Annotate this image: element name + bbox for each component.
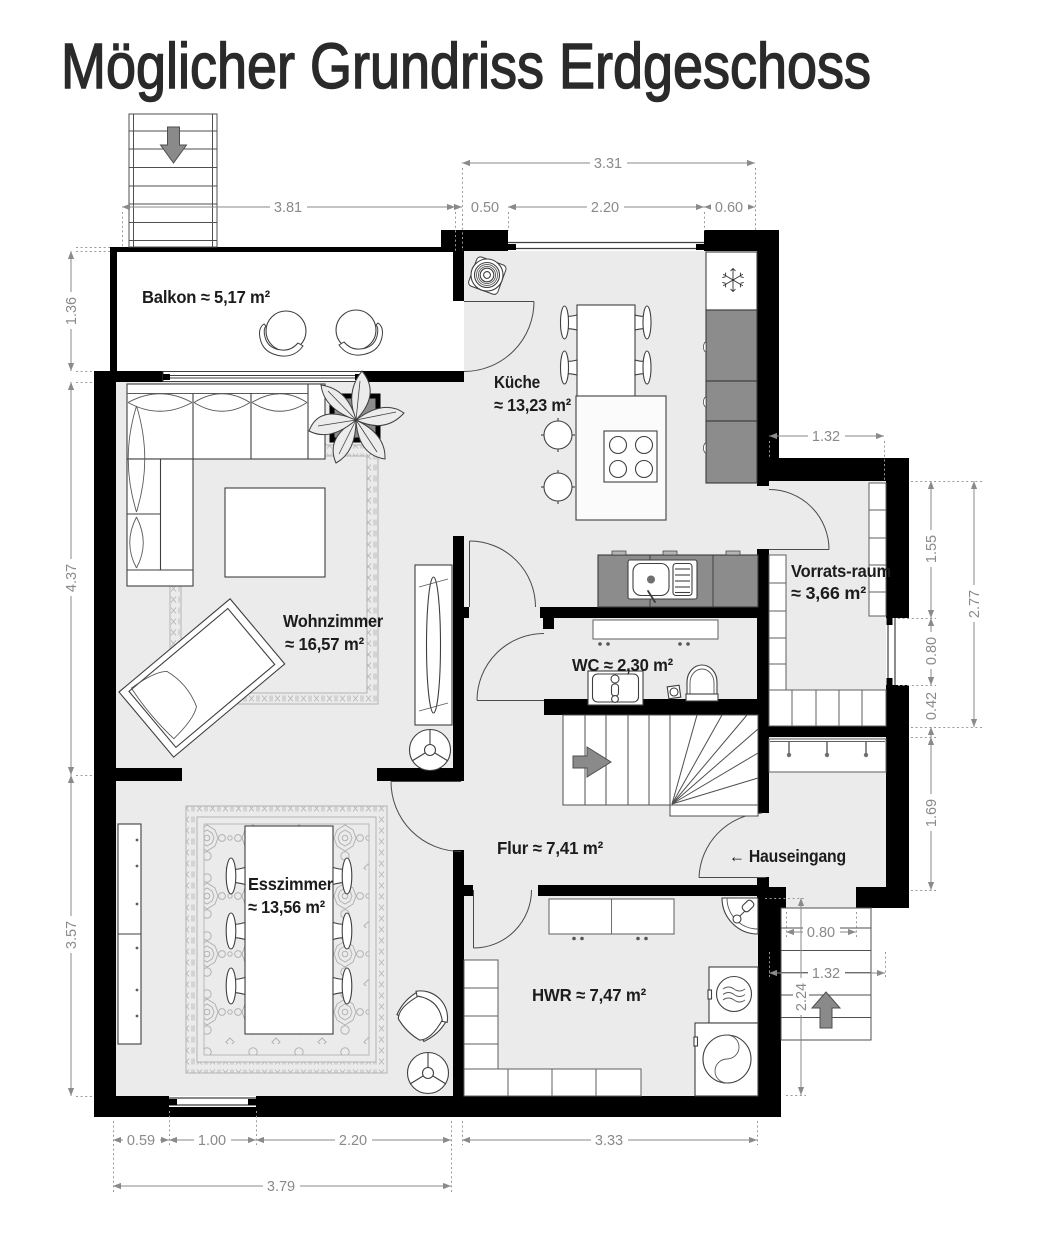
svg-text:Balkon ≈ 5,17 m²: Balkon ≈ 5,17 m² [142, 287, 270, 307]
svg-text:2.77: 2.77 [967, 590, 983, 618]
svg-text:2.20: 2.20 [339, 1133, 367, 1149]
svg-text:Esszimmer: Esszimmer [248, 874, 333, 894]
svg-text:1.69: 1.69 [924, 799, 940, 827]
svg-text:Möglicher Grundriss Erdgeschos: Möglicher Grundriss Erdgeschoss [61, 30, 871, 102]
svg-text:1.00: 1.00 [198, 1133, 226, 1149]
svg-text:← Hauseingang: ← Hauseingang [729, 846, 846, 866]
svg-text:3.31: 3.31 [594, 156, 622, 172]
svg-text:≈ 16,57 m²: ≈ 16,57 m² [285, 634, 364, 654]
svg-text:≈ 13,23 m²: ≈ 13,23 m² [494, 395, 571, 415]
svg-text:WC ≈ 2,30 m²: WC ≈ 2,30 m² [572, 655, 673, 675]
svg-text:Flur ≈ 7,41 m²: Flur ≈ 7,41 m² [497, 838, 603, 858]
svg-text:Küche: Küche [494, 372, 540, 392]
svg-text:0.80: 0.80 [924, 637, 940, 665]
svg-text:2.24: 2.24 [794, 983, 810, 1011]
svg-text:0.60: 0.60 [715, 200, 743, 216]
svg-text:Vorrats-raum: Vorrats-raum [791, 561, 891, 581]
svg-text:3.81: 3.81 [274, 200, 302, 216]
svg-text:≈ 13,56 m²: ≈ 13,56 m² [248, 897, 325, 917]
svg-text:0.50: 0.50 [471, 200, 499, 216]
svg-text:1.32: 1.32 [812, 429, 840, 445]
svg-text:0.80: 0.80 [807, 925, 835, 941]
svg-text:3.57: 3.57 [64, 921, 80, 949]
svg-text:1.36: 1.36 [64, 297, 80, 325]
svg-text:≈ 3,66 m²: ≈ 3,66 m² [791, 583, 866, 603]
svg-text:3.79: 3.79 [267, 1179, 295, 1195]
svg-text:1.55: 1.55 [924, 535, 940, 563]
svg-text:2.20: 2.20 [591, 200, 619, 216]
svg-text:3.33: 3.33 [595, 1133, 623, 1149]
svg-text:Wohnzimmer: Wohnzimmer [283, 611, 383, 631]
svg-text:0.59: 0.59 [127, 1133, 155, 1149]
svg-text:1.32: 1.32 [812, 966, 840, 982]
svg-text:0.42: 0.42 [924, 692, 940, 720]
svg-text:4.37: 4.37 [64, 564, 80, 592]
svg-text:HWR ≈ 7,47 m²: HWR ≈ 7,47 m² [532, 985, 646, 1005]
